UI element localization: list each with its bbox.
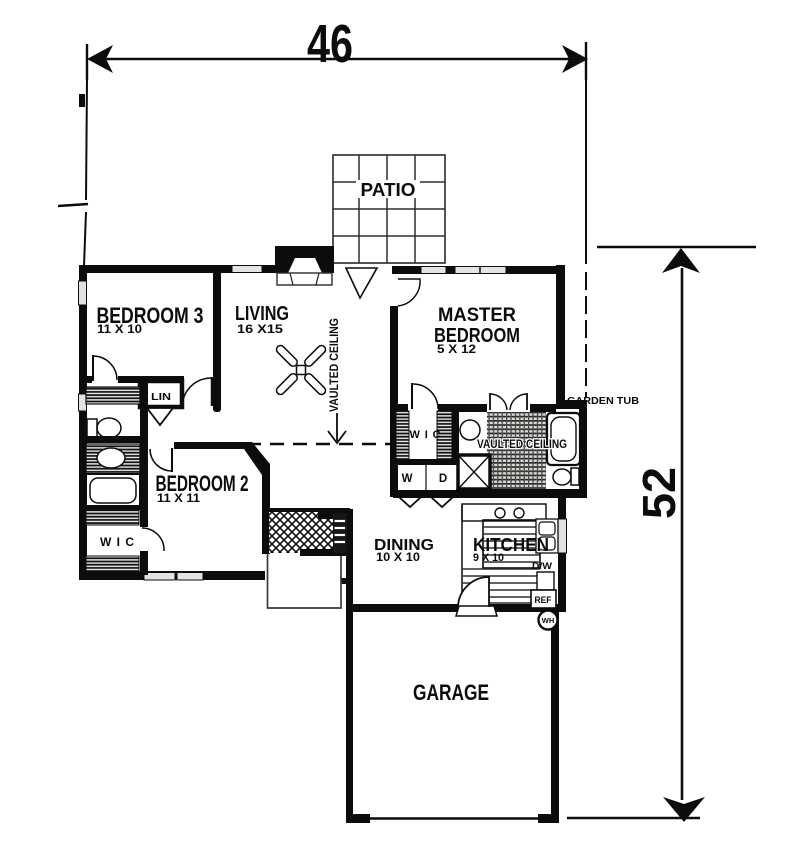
svg-text:D: D [439, 473, 447, 485]
svg-text:5 X 12: 5 X 12 [437, 344, 476, 356]
svg-text:PATIO: PATIO [361, 180, 416, 200]
svg-text:W I C: W I C [100, 535, 134, 549]
svg-text:REF: REF [535, 595, 552, 606]
svg-text:11 X 10: 11 X 10 [97, 324, 142, 336]
svg-text:11 X 11: 11 X 11 [157, 493, 201, 505]
svg-text:LIN: LIN [151, 391, 171, 403]
svg-text:LIVING: LIVING [235, 303, 289, 325]
svg-text:W I C: W I C [410, 429, 441, 441]
svg-text:46: 46 [307, 14, 353, 74]
svg-text:9 X 10: 9 X 10 [473, 552, 504, 564]
svg-text:WH: WH [542, 616, 555, 625]
svg-text:VAULTED CEILING: VAULTED CEILING [329, 318, 341, 412]
svg-text:16 X15: 16 X15 [237, 324, 284, 336]
svg-text:GARDEN TUB: GARDEN TUB [567, 395, 639, 407]
svg-text:10 X 10: 10 X 10 [376, 552, 420, 564]
svg-text:MASTER: MASTER [438, 305, 516, 326]
svg-text:VAULTED CEILING: VAULTED CEILING [477, 437, 567, 451]
svg-text:52: 52 [633, 467, 685, 519]
svg-text:W: W [402, 473, 413, 485]
svg-text:D/W: D/W [532, 561, 552, 572]
svg-text:GARAGE: GARAGE [413, 680, 489, 705]
